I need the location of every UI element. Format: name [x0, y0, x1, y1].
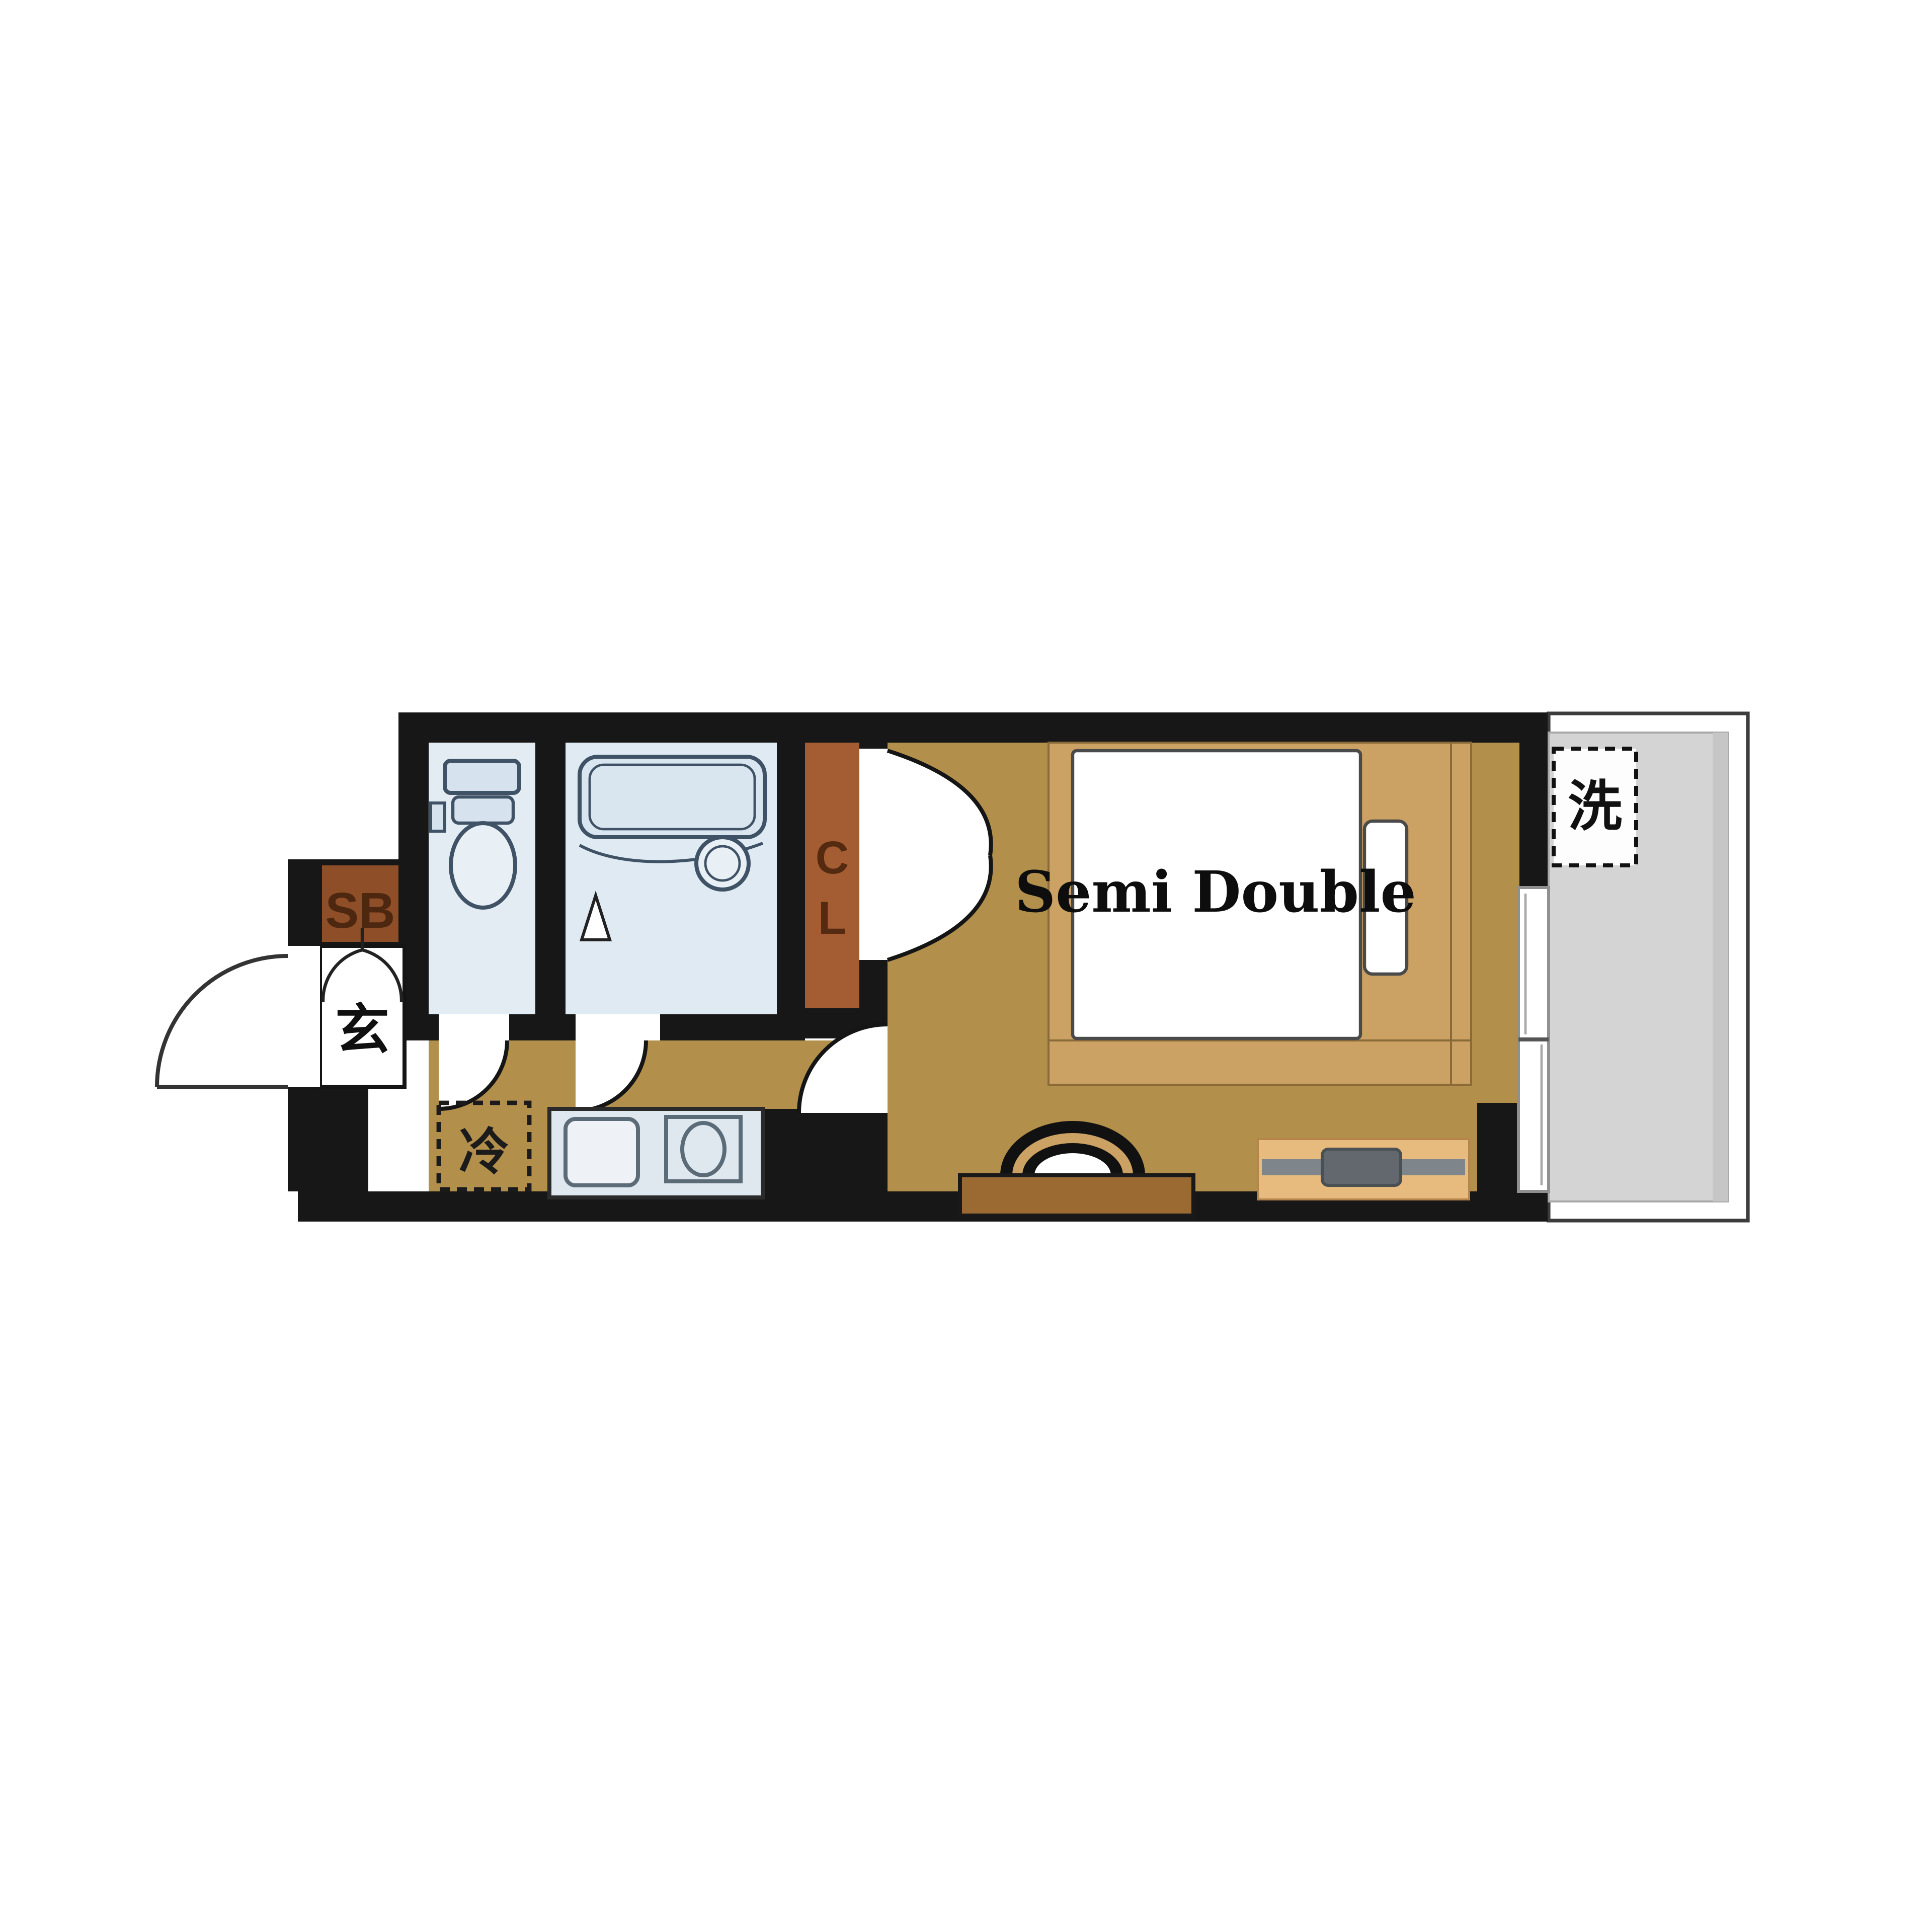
bathroom-door-opening — [576, 1014, 660, 1040]
closet-label-l: L — [818, 893, 846, 944]
wall-kitchen-corner — [765, 1109, 875, 1222]
entry-step — [368, 1087, 429, 1191]
toilet-tank — [445, 761, 519, 793]
wall-top — [398, 712, 1548, 743]
floor-plan: 洗 — [0, 0, 1932, 1932]
tv-body — [1322, 1149, 1401, 1185]
front-door-opening — [288, 946, 320, 1087]
wall-closet-right-top — [859, 712, 888, 749]
toilet-seat — [453, 797, 513, 823]
kitchen-sink — [566, 1119, 638, 1185]
closet-door-opening — [859, 749, 888, 960]
shoe-box-label: SB — [326, 882, 395, 939]
closet-label-c: C — [816, 832, 849, 883]
desk — [960, 1175, 1193, 1216]
wall-pillar — [1477, 1103, 1521, 1222]
toilet-door-opening — [439, 1014, 509, 1040]
genkan-label: 玄 — [335, 999, 389, 1062]
entrance: SB 玄 — [157, 865, 405, 1087]
balcony: 洗 — [1549, 713, 1748, 1221]
front-door-arc — [157, 956, 288, 1087]
wall-bath-closet — [777, 712, 805, 1040]
window — [1518, 888, 1549, 1191]
refrigerator-label: 冷 — [459, 1122, 509, 1181]
wall-entrance-lower — [288, 1087, 368, 1191]
balcony-floor-shade — [1713, 733, 1728, 1201]
bathtub — [580, 757, 765, 837]
wall-toilet-bath — [535, 712, 566, 1040]
bath-basin — [696, 837, 749, 890]
stove-unit — [666, 1117, 741, 1181]
toilet-bowl — [451, 823, 515, 908]
toilet-handle — [431, 803, 445, 831]
washing-machine-label: 洗 — [1568, 775, 1622, 838]
wall-right-upper — [1519, 712, 1548, 888]
floor-plan-page: 洗 — [0, 0, 1932, 1932]
bed-label: Semi Double — [1015, 859, 1416, 925]
